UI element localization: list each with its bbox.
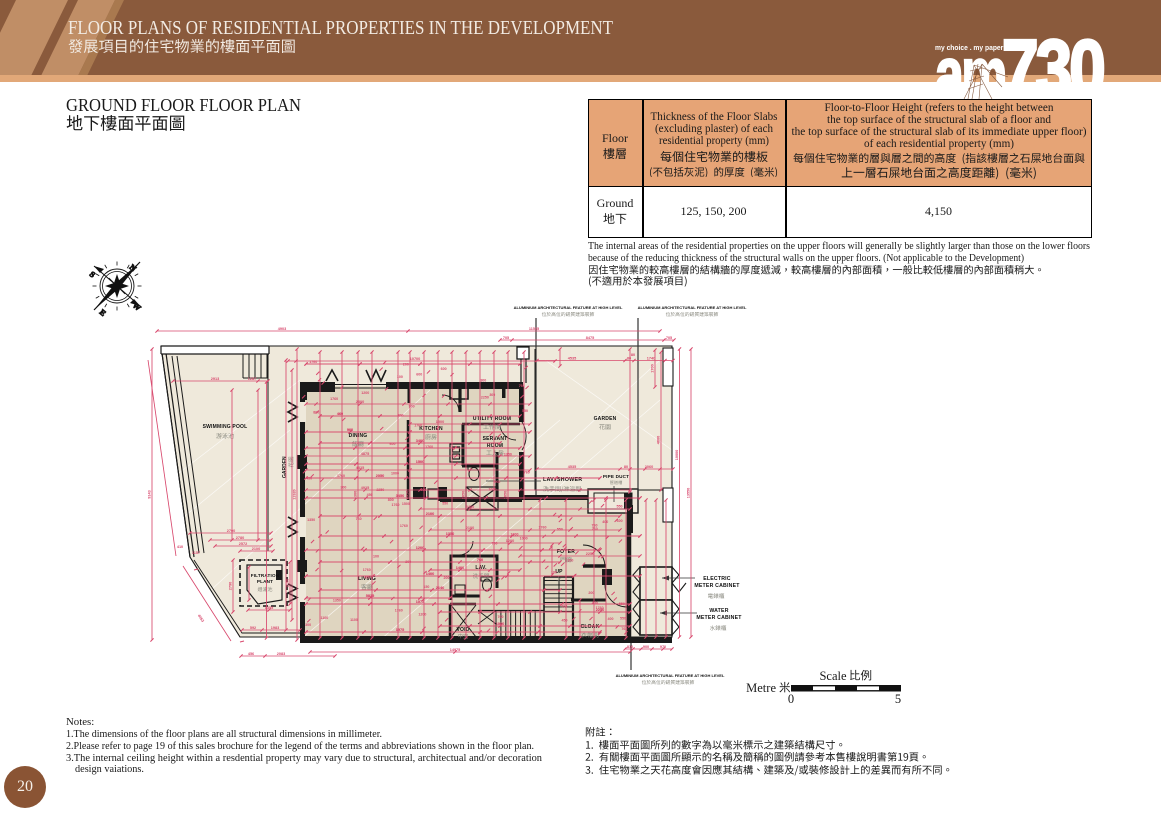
svg-text:550: 550 xyxy=(557,527,563,531)
svg-text:100: 100 xyxy=(373,554,379,558)
svg-text:1350: 1350 xyxy=(307,518,315,522)
svg-text:10700: 10700 xyxy=(410,357,421,361)
svg-text:600: 600 xyxy=(617,519,623,523)
svg-text:E: E xyxy=(98,308,108,318)
svg-text:456: 456 xyxy=(248,652,254,656)
svg-text:1760: 1760 xyxy=(363,568,371,572)
svg-text:760: 760 xyxy=(592,527,598,531)
svg-text:400: 400 xyxy=(602,520,608,524)
svg-text:Metre: Metre xyxy=(746,681,776,695)
svg-text:1500: 1500 xyxy=(416,460,424,464)
svg-text:4535: 4535 xyxy=(568,465,576,469)
svg-text:2100: 2100 xyxy=(252,547,260,551)
svg-text:550: 550 xyxy=(619,602,625,606)
svg-text:200: 200 xyxy=(405,560,411,564)
svg-text:1000: 1000 xyxy=(391,471,399,475)
svg-text:705: 705 xyxy=(503,336,509,340)
svg-text:1157: 1157 xyxy=(192,551,200,555)
svg-text:600: 600 xyxy=(416,373,422,377)
svg-text:970: 970 xyxy=(660,645,666,649)
svg-text:FILTRATION: FILTRATION xyxy=(251,573,280,578)
svg-text:760: 760 xyxy=(524,470,530,474)
svg-text:4453: 4453 xyxy=(197,614,205,623)
svg-text:1000: 1000 xyxy=(511,533,519,537)
svg-text:760: 760 xyxy=(621,627,627,631)
svg-text:900: 900 xyxy=(643,645,649,649)
svg-text:2800: 2800 xyxy=(356,400,364,404)
svg-text:2250: 2250 xyxy=(376,488,384,492)
svg-text:705: 705 xyxy=(666,336,672,340)
svg-text:1983: 1983 xyxy=(271,626,279,630)
svg-text:1760: 1760 xyxy=(395,608,403,612)
svg-text:300: 300 xyxy=(305,623,311,627)
svg-text:550: 550 xyxy=(522,409,528,413)
svg-text:2100: 2100 xyxy=(426,512,434,516)
svg-text:592: 592 xyxy=(250,626,256,630)
svg-text:1200: 1200 xyxy=(361,391,369,395)
svg-text:1760: 1760 xyxy=(337,474,345,478)
svg-text:S: S xyxy=(88,270,98,280)
svg-text:4800: 4800 xyxy=(657,436,661,444)
svg-text:100: 100 xyxy=(567,558,573,562)
svg-text:760: 760 xyxy=(561,605,567,609)
svg-text:1500: 1500 xyxy=(402,502,410,506)
svg-text:200: 200 xyxy=(403,363,409,367)
svg-text:300: 300 xyxy=(489,393,495,397)
svg-text:SERVANT: SERVANT xyxy=(483,436,508,442)
svg-text:550: 550 xyxy=(616,505,622,509)
svg-text:2250: 2250 xyxy=(481,395,489,399)
svg-text:1400: 1400 xyxy=(426,572,434,576)
svg-text:1000: 1000 xyxy=(520,536,528,540)
svg-text:80: 80 xyxy=(631,353,635,357)
svg-text:METER CABINET: METER CABINET xyxy=(696,615,742,621)
svg-text:450: 450 xyxy=(561,618,567,622)
svg-text:UTILITY ROOM: UTILITY ROOM xyxy=(473,416,511,422)
svg-text:900: 900 xyxy=(409,404,415,408)
svg-text:1400: 1400 xyxy=(456,566,464,570)
svg-text:1200: 1200 xyxy=(416,546,424,550)
svg-text:1350: 1350 xyxy=(333,599,341,603)
svg-text:5825: 5825 xyxy=(366,594,374,598)
svg-text:900: 900 xyxy=(347,428,353,432)
svg-text:PLANT: PLANT xyxy=(257,579,273,584)
svg-text:410: 410 xyxy=(177,545,183,549)
svg-text:2700: 2700 xyxy=(227,529,235,533)
svg-text:1200: 1200 xyxy=(418,613,426,617)
svg-text:600: 600 xyxy=(441,367,447,371)
svg-text:1000: 1000 xyxy=(488,487,496,491)
svg-text:100: 100 xyxy=(551,570,557,574)
svg-text:300: 300 xyxy=(420,488,426,492)
svg-text:13550: 13550 xyxy=(687,488,691,499)
svg-text:80: 80 xyxy=(624,465,628,469)
svg-text:4910: 4910 xyxy=(406,491,410,499)
svg-text:760: 760 xyxy=(497,615,503,619)
svg-text:1850: 1850 xyxy=(504,491,508,499)
svg-text:800: 800 xyxy=(388,498,394,502)
svg-text:1100: 1100 xyxy=(320,616,328,620)
svg-text:2780: 2780 xyxy=(236,536,244,540)
svg-text:ALUMINIUM ARCHITECTURAL FEATUR: ALUMINIUM ARCHITECTURAL FEATURE AT HIGH … xyxy=(514,305,623,310)
svg-text:1760: 1760 xyxy=(425,445,433,449)
svg-text:4925: 4925 xyxy=(361,486,369,490)
svg-text:GARDEN: GARDEN xyxy=(594,416,617,422)
svg-text:1100: 1100 xyxy=(350,618,358,622)
svg-text:150: 150 xyxy=(423,585,429,589)
svg-text:ALUMINIUM ARCHITECTURAL FEATUR: ALUMINIUM ARCHITECTURAL FEATURE AT HIGH … xyxy=(638,305,747,310)
svg-text:CLOAK: CLOAK xyxy=(581,624,600,630)
svg-text:200: 200 xyxy=(443,576,449,580)
svg-text:1740: 1740 xyxy=(647,356,655,360)
svg-text:2850: 2850 xyxy=(462,491,466,499)
svg-text:ALUMINIUM ARCHITECTURAL FEATUR: ALUMINIUM ARCHITECTURAL FEATURE AT HIGH … xyxy=(616,673,725,678)
svg-text:1760: 1760 xyxy=(309,360,317,364)
svg-text:2100: 2100 xyxy=(466,526,474,530)
svg-text:SWIMMING POOL: SWIMMING POOL xyxy=(203,424,248,430)
svg-text:1350: 1350 xyxy=(504,453,512,457)
svg-text:1760: 1760 xyxy=(330,397,338,401)
svg-text:2790: 2790 xyxy=(229,582,233,590)
svg-text:2050: 2050 xyxy=(376,474,384,478)
svg-text:1700: 1700 xyxy=(651,364,655,372)
svg-text:14975: 14975 xyxy=(450,648,461,652)
svg-text:1760: 1760 xyxy=(414,423,422,427)
svg-text:4535: 4535 xyxy=(568,356,576,360)
svg-text:1200: 1200 xyxy=(506,539,514,543)
svg-text:800: 800 xyxy=(313,411,319,415)
svg-text:3450: 3450 xyxy=(396,494,404,498)
svg-text:550: 550 xyxy=(620,617,626,621)
svg-text:600: 600 xyxy=(389,442,395,446)
svg-text:4875: 4875 xyxy=(361,452,369,456)
svg-text:Scale: Scale xyxy=(819,669,847,683)
svg-text:1760: 1760 xyxy=(400,524,408,528)
svg-text:0: 0 xyxy=(788,692,794,706)
svg-text:1000: 1000 xyxy=(496,622,504,626)
svg-text:450: 450 xyxy=(306,476,312,480)
svg-text:1287: 1287 xyxy=(248,377,256,381)
svg-text:450: 450 xyxy=(367,493,373,497)
svg-text:3400: 3400 xyxy=(466,505,474,509)
svg-text:550: 550 xyxy=(442,502,448,506)
svg-text:400: 400 xyxy=(608,617,614,621)
svg-text:100: 100 xyxy=(397,375,403,379)
svg-text:800: 800 xyxy=(398,414,404,418)
svg-text:2572: 2572 xyxy=(239,542,247,546)
svg-text:1355: 1355 xyxy=(265,606,273,610)
svg-text:900: 900 xyxy=(494,480,500,484)
svg-text:810: 810 xyxy=(627,645,633,649)
svg-text:1350: 1350 xyxy=(446,532,454,536)
svg-text:4825: 4825 xyxy=(356,466,364,470)
svg-text:WATER: WATER xyxy=(709,608,728,614)
svg-text:300: 300 xyxy=(480,378,486,382)
svg-text:1760: 1760 xyxy=(392,503,400,507)
svg-text:PIPE DUCT: PIPE DUCT xyxy=(603,474,629,479)
svg-text:2913: 2913 xyxy=(211,377,219,381)
svg-text:5: 5 xyxy=(895,692,901,706)
svg-text:11535: 11535 xyxy=(529,327,539,331)
svg-text:1975: 1975 xyxy=(396,628,404,632)
svg-text:760: 760 xyxy=(356,517,362,521)
svg-text:ELECTRIC: ELECTRIC xyxy=(703,576,731,582)
svg-text:9143: 9143 xyxy=(148,490,152,498)
svg-text:450: 450 xyxy=(364,576,370,580)
svg-text:2140: 2140 xyxy=(436,586,444,590)
svg-text:760: 760 xyxy=(519,384,525,388)
svg-text:400: 400 xyxy=(592,601,598,605)
svg-text:760: 760 xyxy=(491,542,497,546)
svg-text:2083: 2083 xyxy=(277,652,285,656)
svg-text:1500: 1500 xyxy=(436,420,444,424)
svg-text:8475: 8475 xyxy=(586,336,594,340)
svg-text:METER CABINET: METER CABINET xyxy=(694,583,740,589)
svg-text:1760: 1760 xyxy=(596,606,604,610)
svg-text:300: 300 xyxy=(340,486,346,490)
svg-text:4903: 4903 xyxy=(278,327,286,331)
svg-text:1760: 1760 xyxy=(539,526,547,530)
svg-text:3400: 3400 xyxy=(416,439,424,443)
svg-text:10000: 10000 xyxy=(675,450,679,461)
svg-text:200: 200 xyxy=(588,591,594,595)
svg-text:GARDEN: GARDEN xyxy=(282,456,288,478)
svg-text:11920: 11920 xyxy=(293,489,297,499)
svg-text:2060: 2060 xyxy=(645,465,653,469)
